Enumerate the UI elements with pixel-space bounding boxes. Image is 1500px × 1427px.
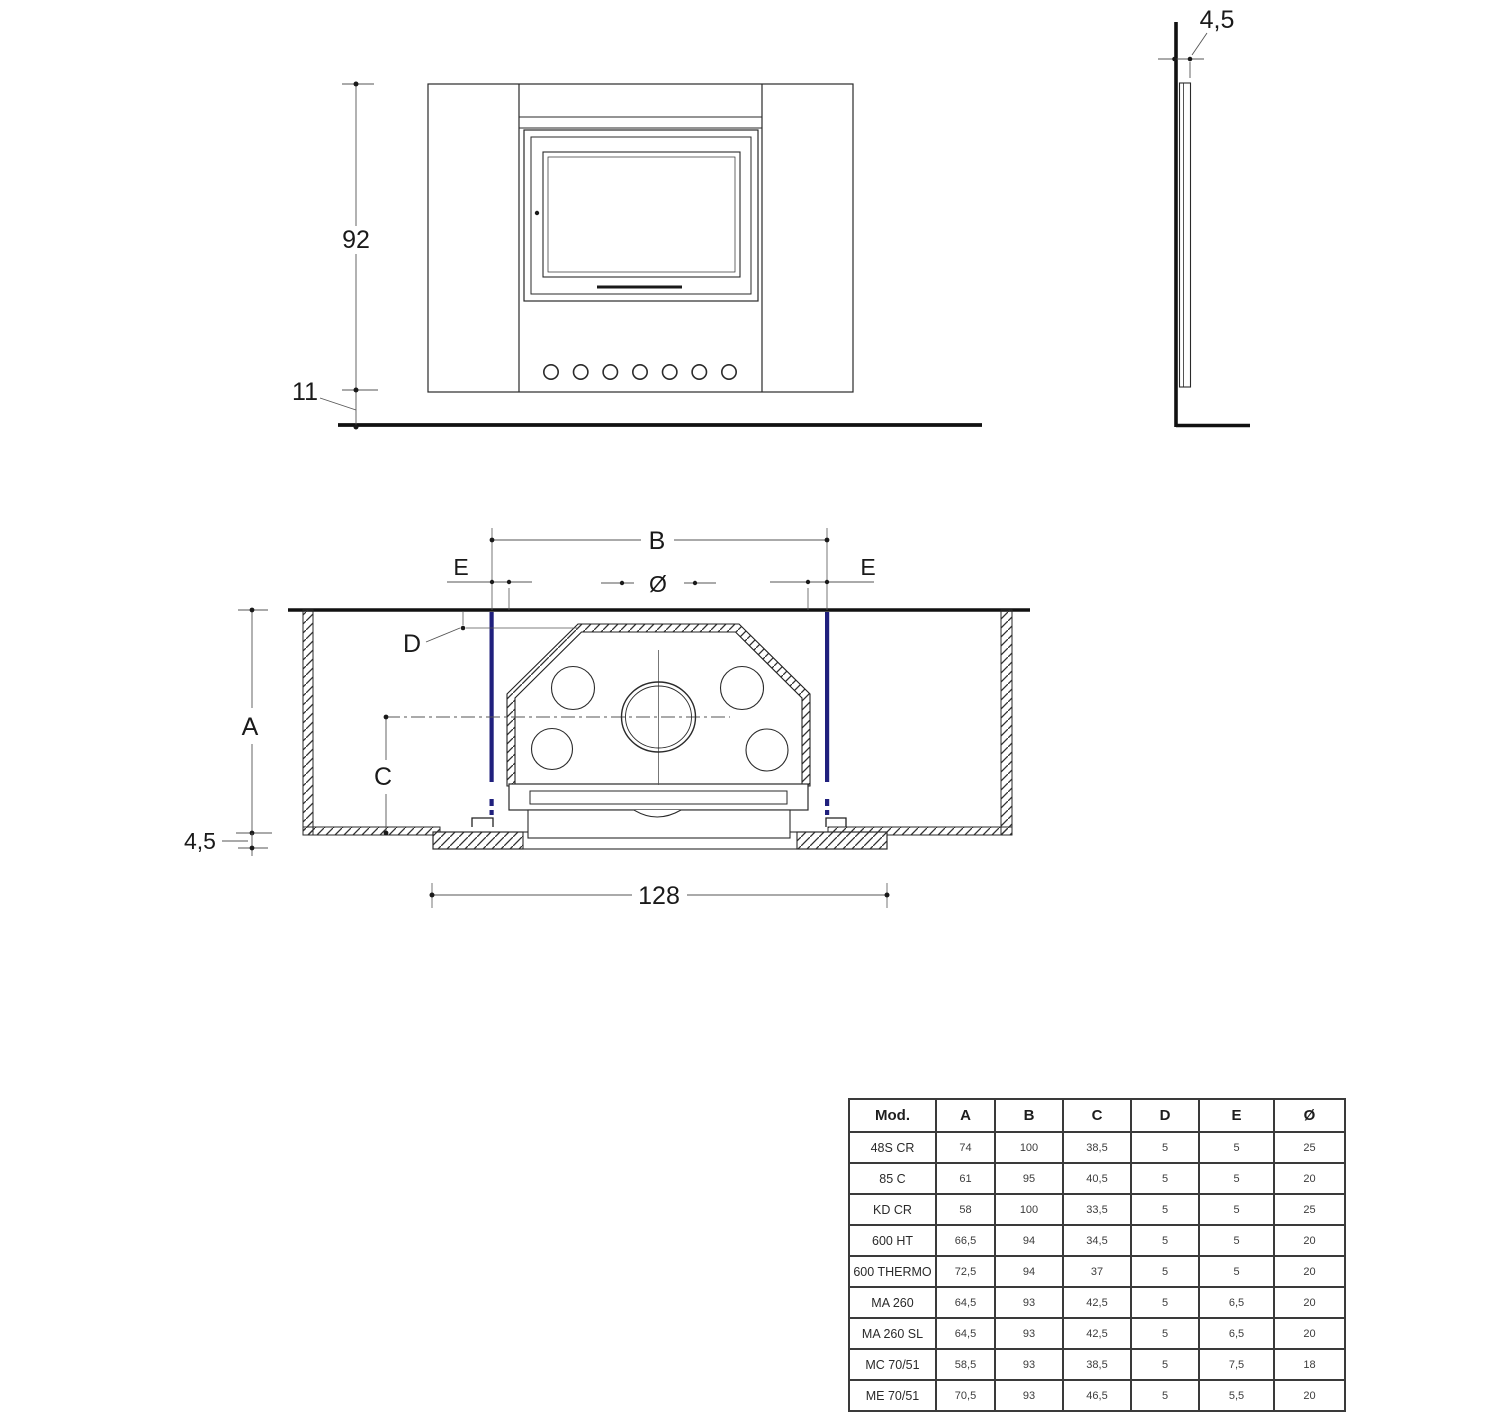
drawer-front [530,791,787,804]
table-row: ME 70/5170,59346,555,520 [849,1380,1345,1411]
value-cell: 5 [1199,1194,1274,1225]
side-thickness-dim [1158,33,1207,78]
inset-left-label: E [453,554,468,580]
side-panel [1180,83,1191,387]
model-cell: MC 70/51 [849,1349,936,1380]
value-cell: 46,5 [1063,1380,1131,1411]
value-cell: 93 [995,1349,1063,1380]
value-cell: 5 [1199,1163,1274,1194]
value-cell: 5 [1131,1225,1199,1256]
door-hinge-dot [535,211,539,215]
value-cell: 66,5 [936,1225,995,1256]
wall-offset-label: D [403,630,421,658]
value-cell: 25 [1274,1132,1345,1163]
column-header: E [1199,1099,1274,1132]
value-cell: 70,5 [936,1380,995,1411]
value-cell: 5 [1131,1287,1199,1318]
plinth-leader [320,398,356,410]
vent-bottom-left [532,729,573,770]
value-cell: 5 [1131,1163,1199,1194]
model-cell: KD CR [849,1194,936,1225]
value-cell: 6,5 [1199,1287,1274,1318]
column-header: D [1131,1099,1199,1132]
model-cell: 48S CR [849,1132,936,1163]
spec-table-head-row: Mod.ABCDEØ [849,1099,1345,1132]
plate-thickness-label: 4,5 [184,828,216,854]
model-cell: 600 HT [849,1225,936,1256]
value-cell: 5 [1199,1225,1274,1256]
value-cell: 5 [1131,1349,1199,1380]
value-cell: 93 [995,1287,1063,1318]
flue-diameter-label: Ø [649,571,667,597]
model-cell: MA 260 [849,1287,936,1318]
front-view-dimensions: 92 11 [292,82,378,430]
blue-line-right [825,612,829,782]
front-view [338,84,982,425]
value-cell: 20 [1274,1287,1345,1318]
value-cell: 20 [1274,1163,1345,1194]
width-label: B [649,527,666,555]
floor-plate-hatch-right [797,832,887,849]
value-cell: 95 [995,1163,1063,1194]
value-cell: 58,5 [936,1349,995,1380]
model-cell: ME 70/51 [849,1380,936,1411]
value-cell: 93 [995,1318,1063,1349]
table-row: 600 HT66,59434,55520 [849,1225,1345,1256]
value-cell: 33,5 [1063,1194,1131,1225]
value-cell: 64,5 [936,1287,995,1318]
wall-left [303,610,313,835]
model-cell: 600 THERMO [849,1256,936,1287]
technical-drawing-page: 92 11 4,5 [0,0,1500,1427]
value-cell: 72,5 [936,1256,995,1287]
value-cell: 5,5 [1199,1380,1274,1411]
value-cell: 5 [1131,1194,1199,1225]
value-cell: 94 [995,1256,1063,1287]
value-cell: 38,5 [1063,1132,1131,1163]
value-cell: 20 [1274,1318,1345,1349]
model-cell: 85 C [849,1163,936,1194]
value-cell: 42,5 [1063,1318,1131,1349]
value-cell: 5 [1131,1256,1199,1287]
value-cell: 7,5 [1199,1349,1274,1380]
value-cell: 93 [995,1380,1063,1411]
value-cell: 74 [936,1132,995,1163]
value-cell: 34,5 [1063,1225,1131,1256]
value-cell: 40,5 [1063,1163,1131,1194]
value-cell: 25 [1274,1194,1345,1225]
plinth-height-label: 11 [292,378,318,406]
wall-bottom-left [303,827,440,835]
value-cell: 6,5 [1199,1318,1274,1349]
spec-table-body: 48S CR7410038,5552585 C619540,55520KD CR… [849,1132,1345,1411]
table-row: 85 C619540,55520 [849,1163,1345,1194]
overall-width-label: 128 [638,882,680,910]
column-header: C [1063,1099,1131,1132]
table-row: MA 26064,59342,556,520 [849,1287,1345,1318]
column-header: A [936,1099,995,1132]
table-row: MA 260 SL64,59342,556,520 [849,1318,1345,1349]
value-cell: 38,5 [1063,1349,1131,1380]
table-row: 600 THERMO72,594375520 [849,1256,1345,1287]
value-cell: 64,5 [936,1318,995,1349]
center-distance-label: C [374,763,392,791]
value-cell: 20 [1274,1256,1345,1287]
table-row: 48S CR7410038,55525 [849,1132,1345,1163]
value-cell: 20 [1274,1380,1345,1411]
value-cell: 5 [1199,1256,1274,1287]
value-cell: 5 [1131,1132,1199,1163]
value-cell: 37 [1063,1256,1131,1287]
insert-front-assembly [509,784,808,838]
vent-top-right [721,667,764,710]
side-thickness-label: 4,5 [1200,6,1235,34]
spec-table: Mod.ABCDEØ 48S CR7410038,5552585 C619540… [848,1098,1346,1412]
table-row: MC 70/5158,59338,557,518 [849,1349,1345,1380]
inset-right-label: E [860,554,875,580]
column-header: B [995,1099,1063,1132]
value-cell: 61 [936,1163,995,1194]
value-cell: 100 [995,1194,1063,1225]
value-cell: 94 [995,1225,1063,1256]
plan-dimensions: B E E Ø D [184,527,889,910]
vent-bottom-right [746,729,788,771]
side-view: 4,5 [1158,6,1250,427]
vent-top-left [552,667,595,710]
front-height-label: 92 [342,226,370,254]
table-row: KD CR5810033,55525 [849,1194,1345,1225]
value-cell: 5 [1131,1318,1199,1349]
column-header: Mod. [849,1099,936,1132]
value-cell: 58 [936,1194,995,1225]
value-cell: 5 [1199,1132,1274,1163]
plan-view: B E E Ø D [184,527,1030,910]
value-cell: 5 [1131,1380,1199,1411]
value-cell: 18 [1274,1349,1345,1380]
value-cell: 42,5 [1063,1287,1131,1318]
value-cell: 100 [995,1132,1063,1163]
column-header: Ø [1274,1099,1345,1132]
value-cell: 20 [1274,1225,1345,1256]
wall-right [1001,610,1012,835]
depth-label: A [242,713,259,741]
blue-line-left [490,612,494,782]
model-cell: MA 260 SL [849,1318,936,1349]
floor-plate-hatch-left [433,832,523,849]
flue-and-vents [386,650,788,785]
